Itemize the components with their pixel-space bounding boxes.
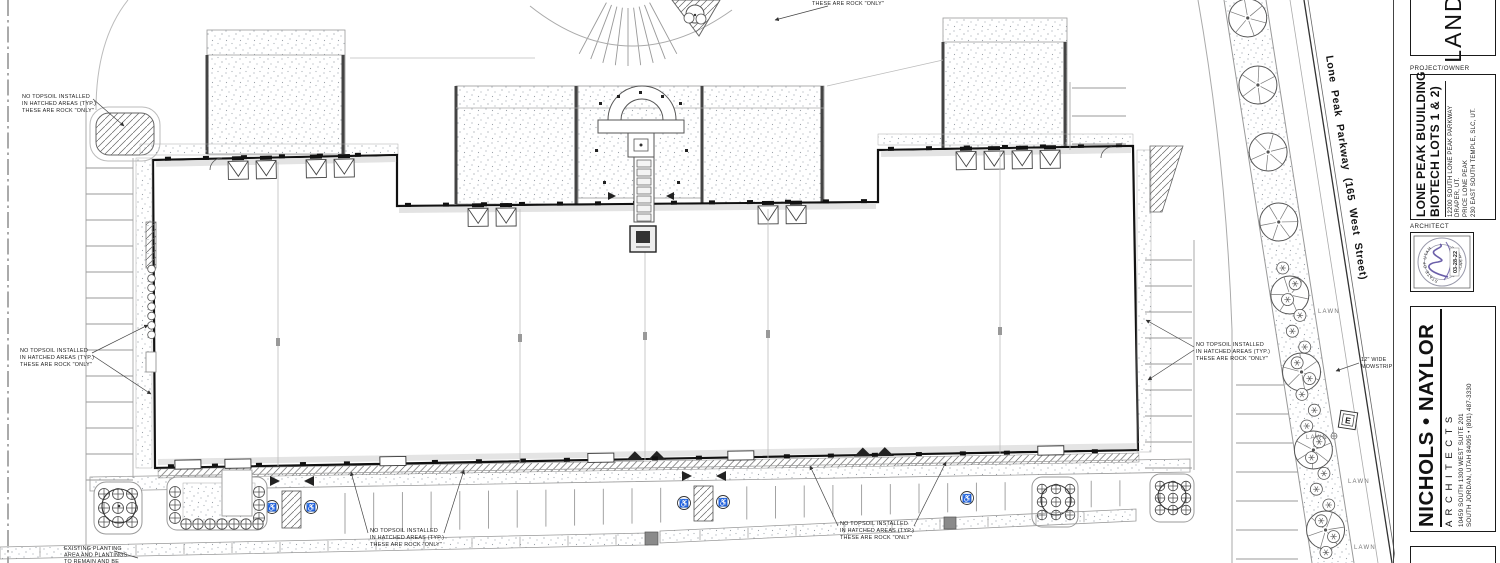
svg-text:EXISTING PLANTING: EXISTING PLANTING: [64, 546, 122, 552]
svg-text:TO REMAIN AND BE: TO REMAIN AND BE: [64, 559, 119, 563]
svg-text:♿: ♿: [962, 493, 972, 503]
svg-text:THESE ARE ROCK "ONLY": THESE ARE ROCK "ONLY": [1196, 356, 1268, 362]
note-no-topsoil-3: NO TOPSOIL INSTALLED IN HATCHED AREAS (T…: [1146, 320, 1270, 380]
project-rule: [1445, 81, 1446, 217]
firm-name: NICHOLS • NAYLOR: [1415, 309, 1442, 527]
next-titleblock-box: [1410, 546, 1496, 563]
project-address-2: DRAPER, UT.: [1455, 77, 1463, 217]
architect-stamp-box: STATE OF UTAH LANDSCAPE ARCHITECT 03-28-…: [1410, 232, 1474, 292]
architect-label: ARCHITECT: [1410, 223, 1449, 230]
site-plan-drawing: Lone Peak Parkway (165 West Street) LAWN…: [0, 0, 1395, 563]
lawn-label-3: LAWN: [1348, 479, 1370, 485]
drawing-sheet: Lone Peak Parkway (165 West Street) LAWN…: [0, 0, 1500, 563]
stamp-date: 03-28-22: [1453, 251, 1459, 273]
project-address-1: 12200 SOUTH LONE PEAK PARKWAY: [1448, 77, 1456, 217]
titleblock-border-line: [1393, 0, 1394, 563]
svg-text:IN HATCHED AREAS (TYP.): IN HATCHED AREAS (TYP.): [840, 528, 914, 534]
note-no-topsoil-top-fragment: THESE ARE ROCK "ONLY": [775, 1, 884, 20]
planting-bed-1: [94, 482, 142, 534]
svg-text:♿: ♿: [306, 502, 316, 512]
planting-bed-4: [1150, 474, 1194, 522]
electrical-vault-box: E: [1338, 410, 1357, 429]
parking-left: [86, 0, 133, 545]
svg-text:THESE ARE ROCK "ONLY": THESE ARE ROCK "ONLY": [840, 535, 912, 541]
svg-text:IN HATCHED AREAS (TYP.): IN HATCHED AREAS (TYP.): [1196, 349, 1270, 355]
svg-text:IN HATCHED AREAS (TYP.): IN HATCHED AREAS (TYP.): [370, 535, 444, 541]
svg-text:♿: ♿: [267, 502, 277, 512]
svg-text:IN HATCHED AREAS (TYP.): IN HATCHED AREAS (TYP.): [20, 355, 94, 361]
project-address-3: PRICE LONE PEAK: [1463, 77, 1471, 217]
svg-text:NO TOPSOIL INSTALLED: NO TOPSOIL INSTALLED: [1196, 342, 1264, 348]
architect-firm-box: NICHOLS • NAYLOR A R C H I T E C T S 104…: [1410, 306, 1496, 532]
project-address-4: 230 EAST SOUTH TEMPLE, SLC, UT.: [1471, 77, 1479, 217]
entry-walkway: [630, 157, 656, 252]
svg-text:MOWSTRIP: MOWSTRIP: [1361, 364, 1393, 370]
sheet-title-box: LANDS: [1410, 0, 1496, 56]
svg-text:IN HATCHED AREAS (TYP.): IN HATCHED AREAS (TYP.): [22, 101, 96, 107]
svg-text:THESE ARE ROCK "ONLY": THESE ARE ROCK "ONLY": [22, 108, 94, 114]
svg-text:THESE ARE ROCK "ONLY": THESE ARE ROCK "ONLY": [812, 1, 884, 7]
note-mowstrip: 12" WIDE MOWSTRIP: [1336, 357, 1393, 371]
svg-text:THESE ARE ROCK "ONLY": THESE ARE ROCK "ONLY": [370, 542, 442, 548]
east-wall-strip: [1137, 146, 1183, 452]
lawn-label-4: LAWN: [1354, 545, 1376, 551]
lawn-label-1: LAWN: [1318, 309, 1340, 315]
project-owner-box: LONE PEAK BUUILDING BIOTECH LOTS 1 & 2) …: [1410, 74, 1496, 220]
project-title-line1: LONE PEAK BUUILDING: [1415, 77, 1429, 217]
accessible-parking-symbols: ♿♿♿♿♿: [266, 492, 974, 514]
svg-text:NO TOPSOIL INSTALLED: NO TOPSOIL INSTALLED: [20, 348, 88, 354]
hatched-island-top-tree: [672, 0, 720, 36]
lawn-label-2: LAWN: [1306, 435, 1328, 441]
svg-text:12" WIDE: 12" WIDE: [1361, 357, 1387, 363]
lawn-symbol: [1331, 433, 1337, 439]
project-title-line2: BIOTECH LOTS 1 & 2): [1429, 77, 1443, 217]
svg-text:THESE ARE ROCK "ONLY": THESE ARE ROCK "ONLY": [20, 362, 92, 368]
firm-subtitle: A R C H I T E C T S: [1444, 309, 1455, 527]
svg-text:♿: ♿: [718, 497, 728, 507]
svg-text:♿: ♿: [679, 498, 689, 508]
svg-text:NO TOPSOIL INSTALLED: NO TOPSOIL INSTALLED: [840, 521, 908, 527]
svg-text:AREA AND PLANTINGS: AREA AND PLANTINGS: [64, 553, 128, 559]
sheet-title-text: LANDS: [1440, 0, 1467, 62]
firm-address-2: SOUTH JORDAN, UTAH 84095 • (801) 487-333…: [1466, 309, 1474, 527]
architect-seal: STATE OF UTAH LANDSCAPE ARCHITECT 03-28-…: [1413, 235, 1471, 289]
svg-text:NO TOPSOIL INSTALLED: NO TOPSOIL INSTALLED: [370, 528, 438, 534]
planting-bed-2: [167, 470, 267, 530]
firm-address-1: 10459 SOUTH 1300 WEST SUITE 201: [1458, 309, 1466, 527]
svg-text:NO TOPSOIL INSTALLED: NO TOPSOIL INSTALLED: [22, 94, 90, 100]
